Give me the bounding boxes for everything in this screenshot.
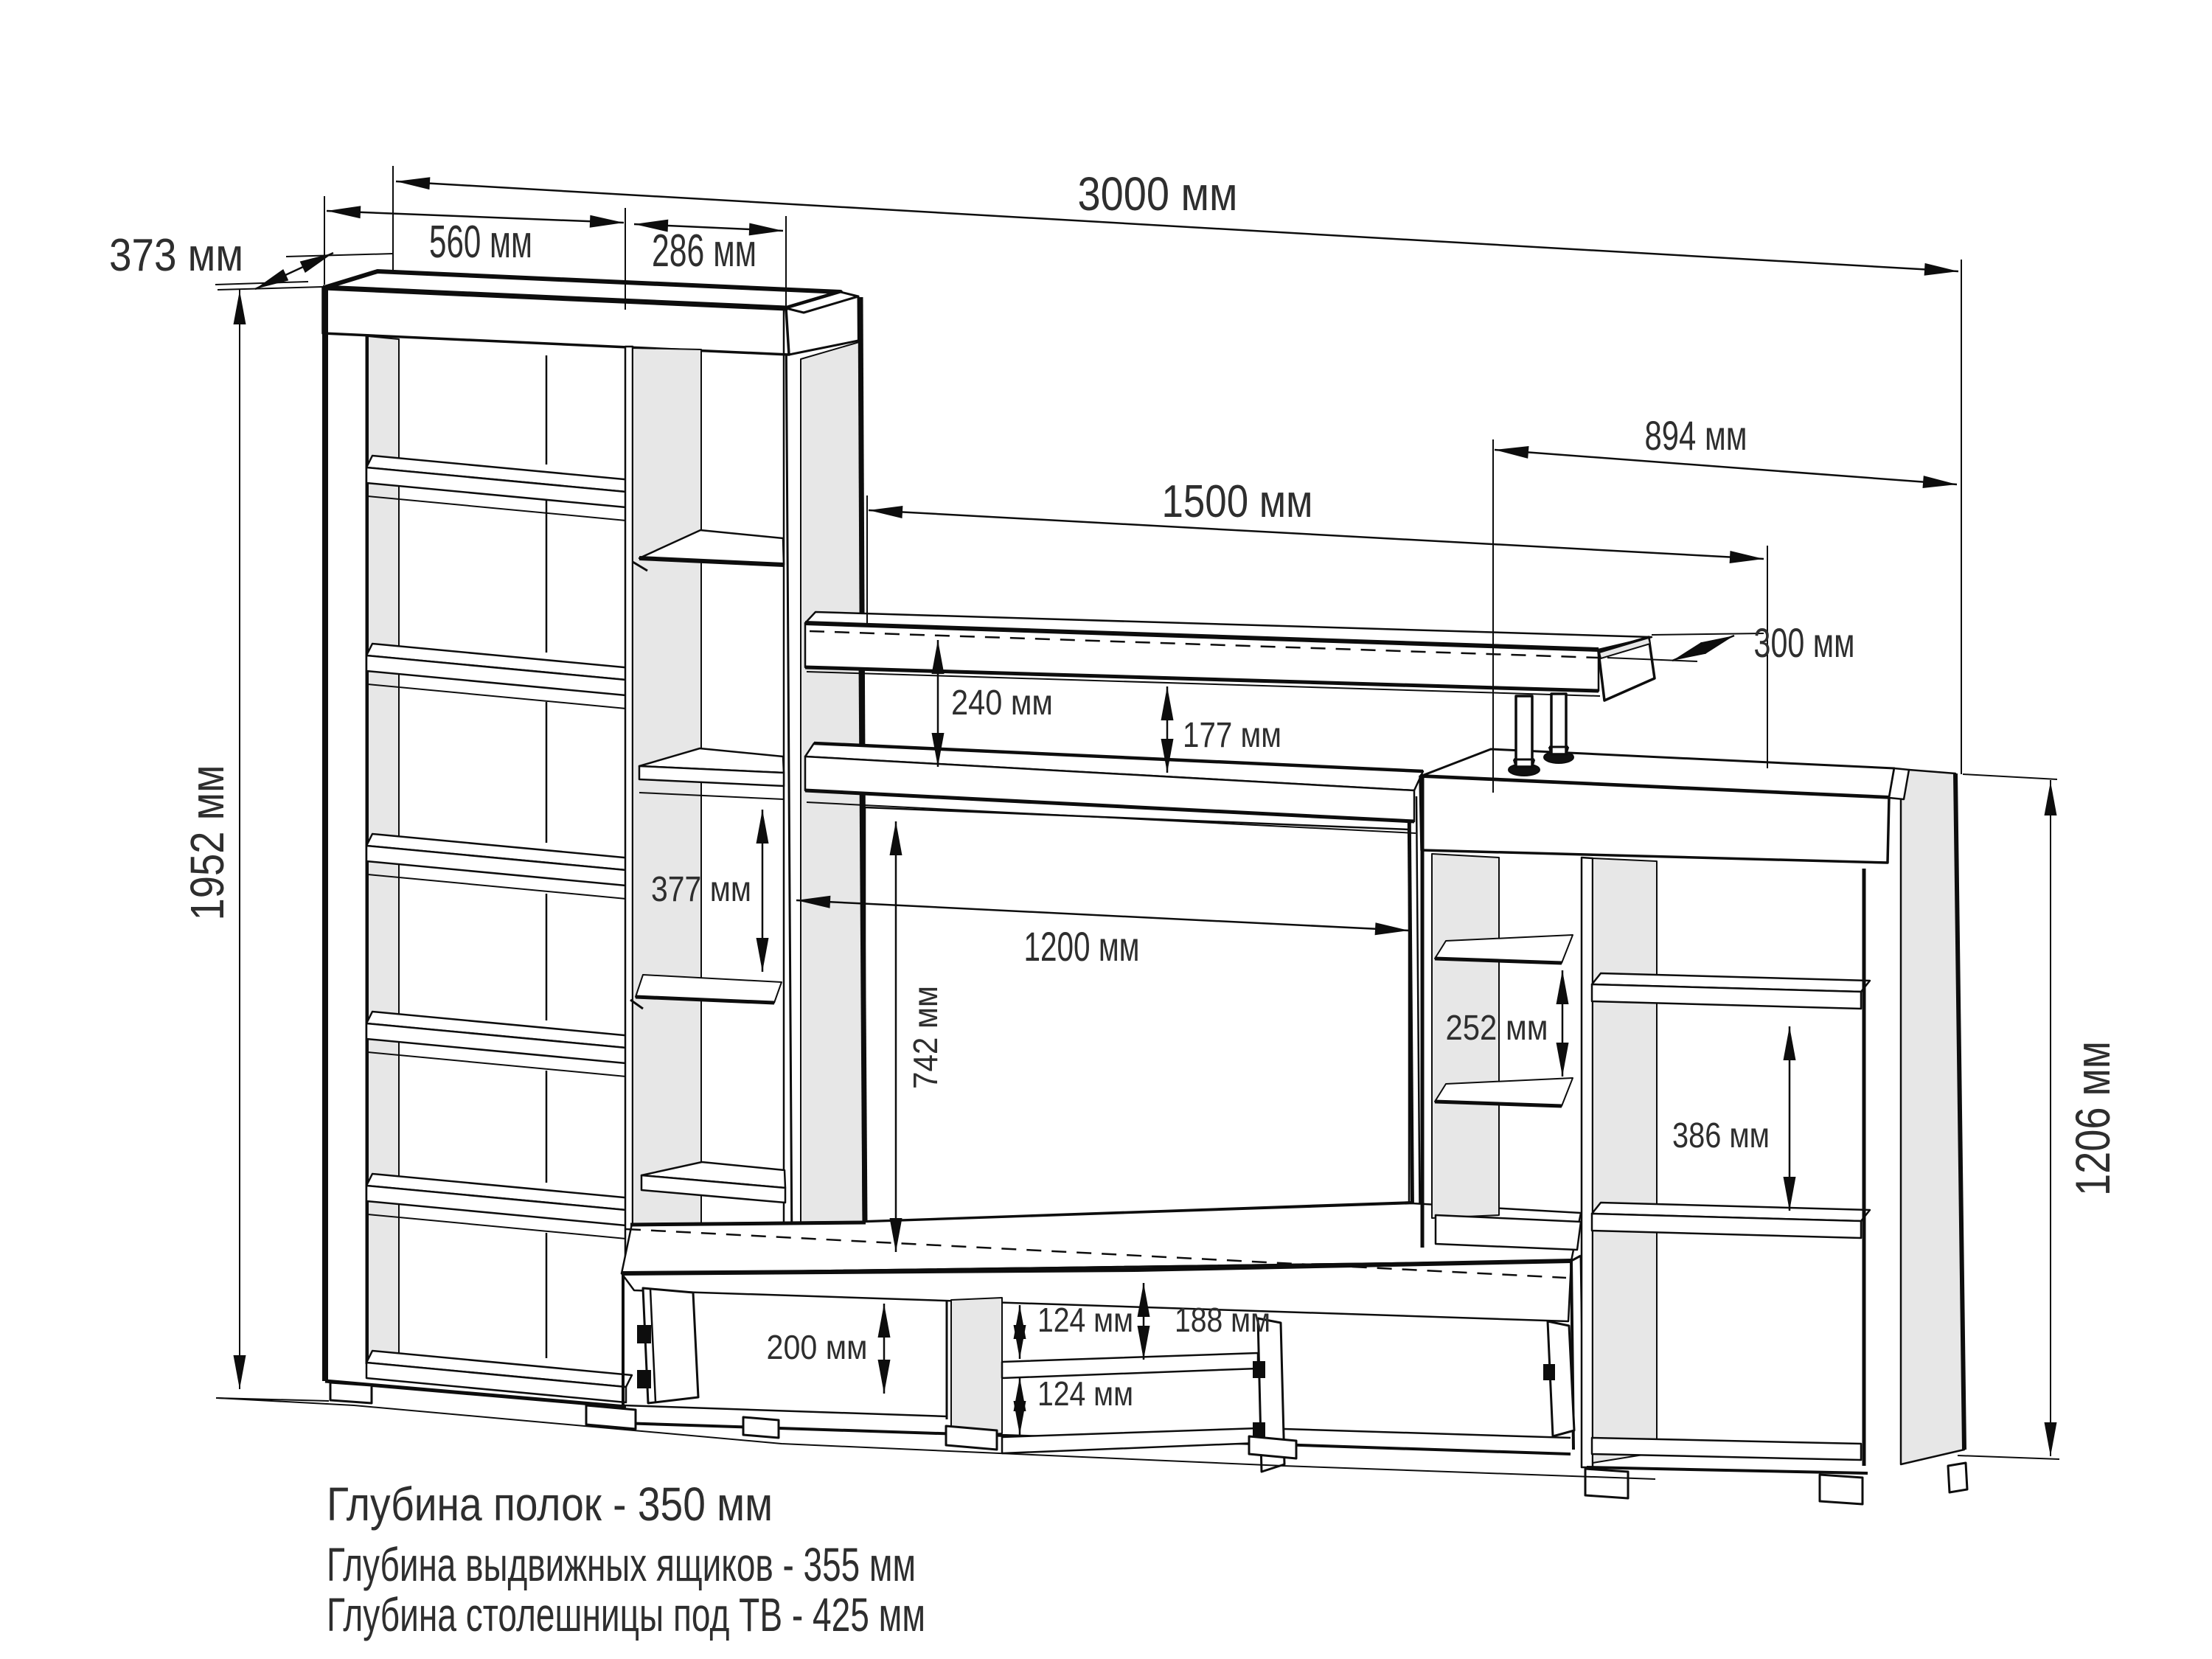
svg-text:1206 мм: 1206 мм — [2065, 1041, 2120, 1196]
svg-text:386 мм: 386 мм — [1672, 1116, 1770, 1155]
svg-text:894 мм: 894 мм — [1645, 412, 1747, 459]
svg-text:252 мм: 252 мм — [1446, 1009, 1548, 1048]
svg-text:124 мм: 124 мм — [1037, 1301, 1133, 1339]
svg-text:1952 мм: 1952 мм — [181, 765, 234, 921]
svg-text:200 мм: 200 мм — [767, 1328, 868, 1366]
svg-text:Глубина столешницы под ТВ - 42: Глубина столешницы под ТВ - 425 мм — [327, 1588, 925, 1641]
svg-text:124 мм: 124 мм — [1037, 1374, 1133, 1413]
svg-text:300 мм: 300 мм — [1754, 619, 1855, 666]
svg-text:560 мм: 560 мм — [429, 217, 532, 268]
svg-text:286 мм: 286 мм — [652, 226, 757, 276]
svg-text:1200 мм: 1200 мм — [1024, 923, 1140, 970]
svg-text:177 мм: 177 мм — [1183, 716, 1281, 755]
svg-text:188 мм: 188 мм — [1175, 1301, 1270, 1339]
svg-text:240 мм: 240 мм — [951, 684, 1053, 723]
svg-text:377 мм: 377 мм — [651, 870, 751, 909]
svg-text:Глубина выдвижных ящиков - 355: Глубина выдвижных ящиков - 355 мм — [327, 1538, 916, 1591]
svg-text:Глубина полок - 350 мм: Глубина полок - 350 мм — [327, 1478, 773, 1531]
svg-text:1500 мм: 1500 мм — [1162, 476, 1313, 527]
svg-text:373 мм: 373 мм — [109, 230, 243, 281]
svg-text:3000 мм: 3000 мм — [1078, 167, 1238, 220]
svg-text:742 мм: 742 мм — [906, 986, 945, 1089]
